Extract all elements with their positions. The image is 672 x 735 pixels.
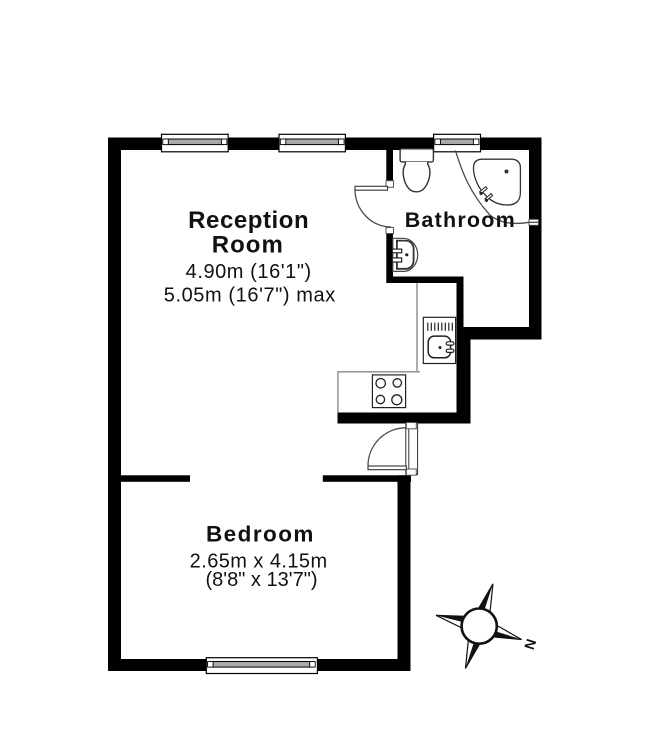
svg-text:(8'8" x 13'7"): (8'8" x 13'7") xyxy=(206,569,318,591)
svg-text:Bathroom: Bathroom xyxy=(405,208,515,232)
svg-text:5.05m (16'7") max: 5.05m (16'7") max xyxy=(164,285,336,307)
svg-text:4.90m (16'1"): 4.90m (16'1") xyxy=(186,261,312,283)
svg-text:Bedroom: Bedroom xyxy=(206,522,314,547)
svg-text:Reception: Reception xyxy=(188,207,309,234)
svg-text:Room: Room xyxy=(212,232,283,259)
